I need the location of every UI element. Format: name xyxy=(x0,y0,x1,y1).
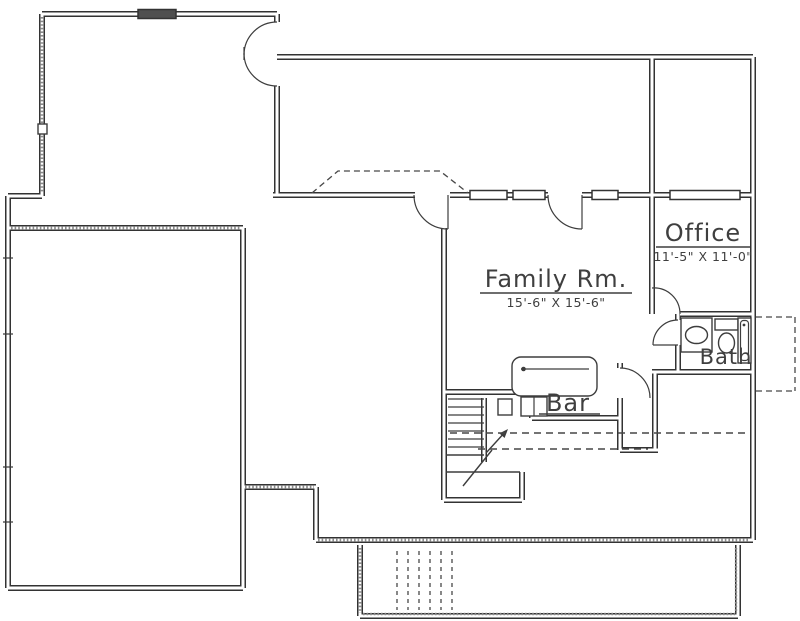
wall-pilaster xyxy=(38,124,47,134)
bar-counter-dot xyxy=(521,367,526,372)
window xyxy=(138,10,176,19)
bath-sink-basin xyxy=(686,327,708,344)
wall-hatching xyxy=(11,17,750,614)
family-room-label: Family Rm. xyxy=(485,265,628,293)
bath-label: Bath xyxy=(700,345,753,369)
door-swing xyxy=(414,195,448,229)
patio-steps xyxy=(397,551,452,610)
office-label: Office xyxy=(665,219,741,247)
office-dimensions: 11'-5" X 11'-0" xyxy=(653,249,752,264)
overhang-above-dashed xyxy=(312,171,468,193)
door-swing xyxy=(244,22,277,55)
door-swing xyxy=(244,53,277,86)
bar-cabinet xyxy=(498,399,512,415)
shower-drain xyxy=(743,324,746,327)
bar-label: Bar xyxy=(546,389,590,417)
door-swing xyxy=(653,320,678,345)
window xyxy=(670,191,740,200)
window xyxy=(513,191,545,200)
door-swing xyxy=(652,288,680,314)
door-swing xyxy=(620,368,650,398)
floor-plan-page: Family Rm. 15'-6" X 15'-6" Office 11'-5"… xyxy=(0,0,800,621)
toilet-tank xyxy=(715,319,738,330)
family-room-dimensions: 15'-6" X 15'-6" xyxy=(506,295,605,310)
window xyxy=(592,191,618,200)
door-swing xyxy=(548,195,582,229)
floor-plan-drawing: Family Rm. 15'-6" X 15'-6" Office 11'-5"… xyxy=(0,0,800,621)
stair-treads xyxy=(448,399,484,447)
window xyxy=(470,191,507,200)
deck-outline-dashed xyxy=(756,317,795,391)
doors xyxy=(244,22,680,398)
walls xyxy=(8,14,753,616)
